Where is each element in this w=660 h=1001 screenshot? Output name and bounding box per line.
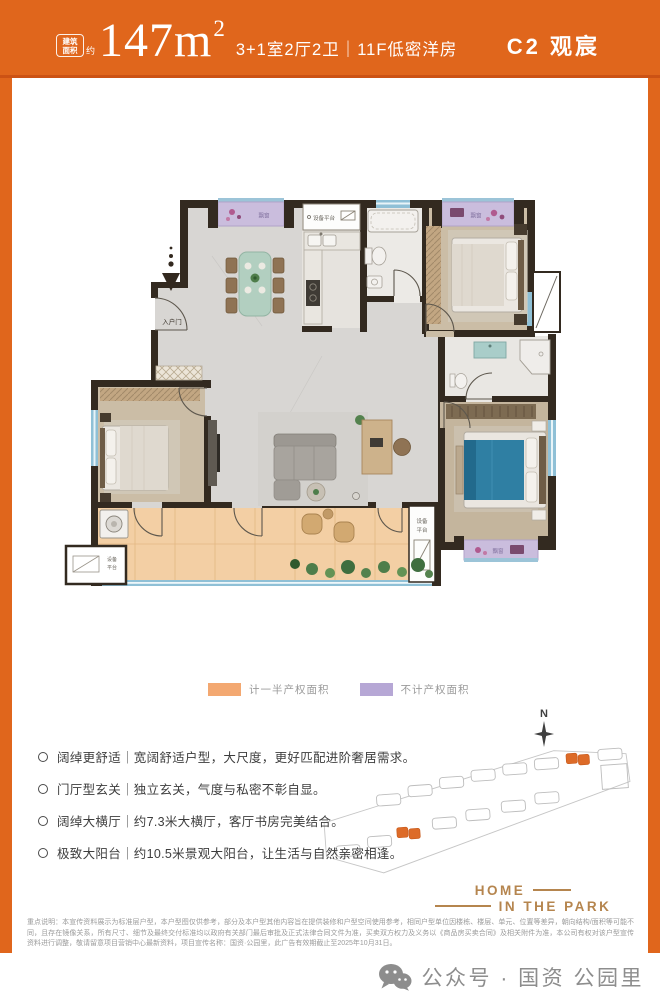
legend-swatch-orange	[208, 683, 241, 696]
brand-line1: HOME	[475, 883, 526, 898]
entry-closet	[156, 366, 202, 380]
footer-account-label: 公众号 · 国资 公园里	[422, 962, 645, 992]
feature-text-1: 阔绰更舒适｜宽阔舒适户型，大尺度，更好匹配进阶奢居需求。	[57, 747, 415, 766]
svg-text:设备: 设备	[107, 556, 117, 563]
bay-window-master: 飘窗	[464, 540, 538, 562]
badge-line1: 建筑	[58, 37, 82, 46]
svg-text:飘窗: 飘窗	[258, 212, 270, 220]
feature-item-3: 阔绰大横厅｜约7.3米大横厅，客厅书房完美结合。	[38, 814, 415, 827]
feature-text-2: 门厅型玄关｜独立玄关，气度与私密不彰自显。	[57, 779, 326, 798]
feature-item-1: 阔绰更舒适｜宽阔舒适户型，大尺度，更好匹配进阶奢居需求。	[38, 750, 415, 763]
area-badge: 建筑 面积 约	[56, 34, 96, 57]
svg-text:平台: 平台	[107, 564, 117, 571]
brand-row-1: HOME	[428, 882, 618, 898]
layout-info: 3+1室2厅2卫｜11F低密洋房	[236, 36, 458, 60]
entry-label: 入户门	[162, 317, 182, 326]
bay-window-bedroom2: 飘窗	[442, 198, 514, 226]
area-exponent: 2	[213, 16, 226, 41]
footer: 公众号 · 国资 公园里	[0, 953, 660, 1001]
legend-half-area: 计一半产权面积	[208, 682, 330, 697]
compass-n-label: N	[540, 708, 548, 720]
content-card: 飘窗 飘窗 飘窗	[12, 78, 648, 953]
brand-rule-right	[533, 889, 571, 891]
svg-text:平台: 平台	[416, 526, 428, 534]
brand-logo: HOME IN THE PARK	[428, 882, 618, 914]
legend-swatch-purple	[360, 683, 393, 696]
svg-text:设备: 设备	[416, 517, 428, 525]
bullet-ring-icon	[38, 784, 48, 794]
bullet-ring-icon	[38, 848, 48, 858]
equipment-platform-left: 设备 平台	[66, 546, 126, 584]
svg-text:设备平台: 设备平台	[313, 214, 336, 222]
equipment-platform-top: 设备平台	[303, 204, 360, 230]
feature-text-4: 极致大阳台｜约10.5米景观大阳台，让生活与自然亲密相逢。	[57, 843, 403, 862]
floor-plan: 飘窗 飘窗 飘窗	[62, 196, 562, 628]
shaft	[533, 272, 560, 332]
badge-approx: 约	[86, 44, 95, 57]
brand-row-2: IN THE PARK	[428, 898, 618, 914]
bullet-ring-icon	[38, 752, 48, 762]
unit-name: C2 观宸	[507, 29, 600, 61]
feature-list: 阔绰更舒适｜宽阔舒适户型，大尺度，更好匹配进阶奢居需求。 门厅型玄关｜独立玄关，…	[38, 750, 415, 878]
brand-line2: IN THE PARK	[499, 899, 612, 914]
header: 建筑 面积 约 147m2 3+1室2厅2卫｜11F低密洋房 C2 观宸	[0, 0, 660, 78]
svg-text:飘窗: 飘窗	[470, 212, 482, 220]
wechat-icon	[378, 963, 412, 991]
legend: 计一半产权面积 不计产权面积	[208, 682, 470, 697]
brand-rule-left	[435, 905, 491, 907]
bay-window-dining: 飘窗	[218, 198, 284, 226]
feature-item-2: 门厅型玄关｜独立玄关，气度与私密不彰自显。	[38, 782, 415, 795]
svg-text:飘窗: 飘窗	[492, 547, 504, 555]
legend-label-excluded: 不计产权面积	[401, 682, 470, 697]
feature-item-4: 极致大阳台｜约10.5米景观大阳台，让生活与自然亲密相逢。	[38, 846, 415, 859]
legend-excluded-area: 不计产权面积	[360, 682, 470, 697]
floorplan-flyer: 建筑 面积 约 147m2 3+1室2厅2卫｜11F低密洋房 C2 观宸	[0, 0, 660, 1001]
area-value: 147m2	[99, 19, 226, 63]
feature-text-3: 阔绰大横厅｜约7.3米大横厅，客厅书房完美结合。	[57, 811, 344, 830]
bullet-ring-icon	[38, 816, 48, 826]
legend-label-half: 计一半产权面积	[249, 682, 330, 697]
disclaimer-text: 重点说明：本宣传资料展示为标准层户型，本户型图仅供参考，部分及本户型其他内容旨在…	[27, 918, 634, 950]
area-badge-box: 建筑 面积	[56, 34, 84, 57]
badge-line2: 面积	[58, 46, 82, 55]
dining-table	[226, 252, 284, 316]
